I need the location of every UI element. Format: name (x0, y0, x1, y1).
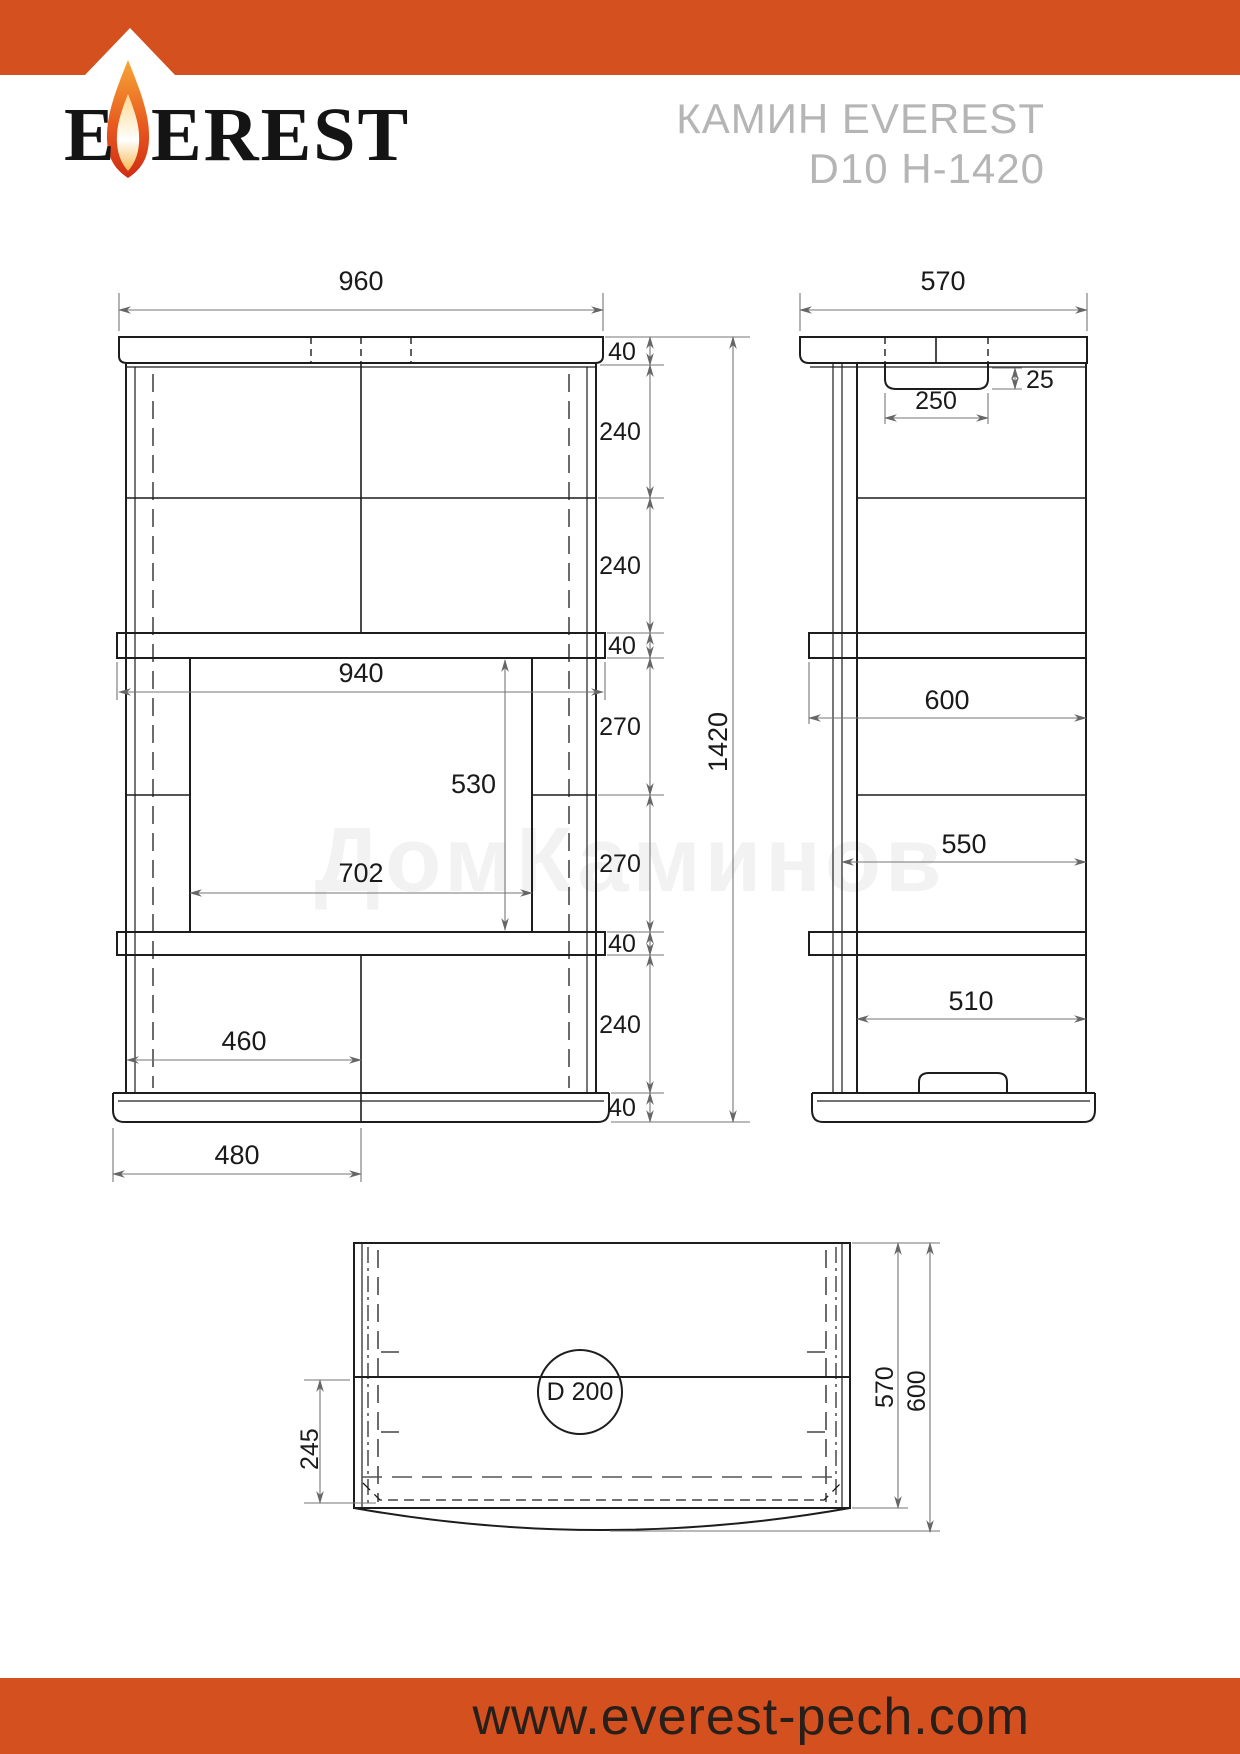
website-url[interactable]: www.everest-pech.com (472, 1687, 1030, 1747)
dim-side-vent-width: 250 (915, 387, 957, 415)
dimension-lines (113, 293, 1087, 1532)
dim-chain-lower-shelf: 40 (608, 930, 636, 958)
dim-front-base-half-width: 480 (214, 1140, 259, 1170)
dim-front-shelf-width: 940 (338, 658, 383, 688)
dim-side-vent-height: 25 (1026, 366, 1054, 394)
dim-side-shelf-depth: 600 (924, 685, 969, 715)
dim-chain-firebox-upper: 270 (599, 713, 641, 741)
dim-side-plinth-depth: 510 (948, 986, 993, 1016)
dim-side-body-depth: 550 (941, 829, 986, 859)
dim-bottom-inner-depth: 570 (871, 1366, 899, 1408)
dimension-labels: 960 940 702 530 460 480 40 240 240 40 27… (214, 266, 1053, 1470)
dim-front-plinth-half-width: 460 (221, 1026, 266, 1056)
dim-front-overall-height: 1420 (703, 712, 733, 772)
dim-front-overall-width: 960 (338, 266, 383, 296)
dim-chain-shelf: 40 (608, 632, 636, 660)
dim-chain-cap: 40 (608, 338, 636, 366)
dim-chain-base: 40 (608, 1094, 636, 1122)
dim-chain-tier2: 240 (599, 552, 641, 580)
technical-drawing: 960 940 702 530 460 480 40 240 240 40 27… (0, 0, 1240, 1754)
dim-side-overall-depth: 570 (920, 266, 965, 296)
dim-bottom-outer-depth: 600 (903, 1370, 931, 1412)
front-view (113, 337, 609, 1122)
dim-bottom-flue-diameter: D 200 (547, 1378, 614, 1406)
dim-front-opening-width: 702 (338, 858, 383, 888)
datasheet-page: E EREST КАМИН EVEREST D10 H-1420 ДомКами… (0, 0, 1240, 1754)
dim-front-opening-height: 530 (451, 769, 496, 799)
dim-bottom-flue-offset: 245 (296, 1428, 324, 1470)
dim-chain-tier1: 240 (599, 418, 641, 446)
dim-chain-plinth-tier: 240 (599, 1011, 641, 1039)
dim-chain-firebox-lower: 270 (599, 850, 641, 878)
